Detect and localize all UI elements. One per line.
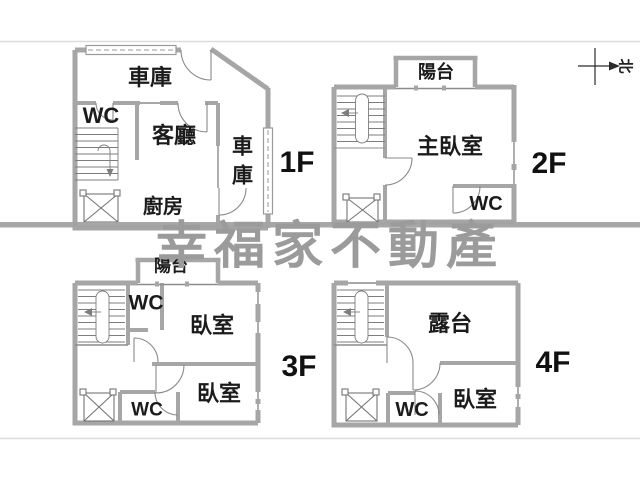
floor1-garage-shutter-right: [264, 128, 273, 214]
floor2-tag: 2F: [531, 149, 566, 179]
floor2-stairs: [334, 94, 385, 148]
floor4-elevator: [342, 389, 379, 421]
floor1-garage-shutter-top: [86, 46, 176, 55]
floor1-garage-top-label: 車庫: [128, 67, 172, 89]
floor3-wc-lower-label: WC: [131, 401, 163, 420]
floor3-wc-upper-label: WC: [129, 293, 164, 314]
compass-north-label: 北: [616, 58, 637, 73]
floor1-wc-label: WC: [83, 105, 120, 127]
floor3-bedroom-lower-label: 臥室: [197, 383, 241, 405]
floor1-garage-side-label: 車庫: [231, 135, 252, 193]
compass-arrow-icon: [578, 48, 620, 85]
floor3-tag: 3F: [281, 352, 316, 382]
floor3-elevator: [80, 389, 116, 421]
floor4-terrace-label: 露台: [428, 313, 472, 335]
floor2-balcony-label: 陽台: [418, 63, 454, 81]
floor4-bedroom-label: 臥室: [453, 389, 497, 411]
floor-plan-image: 車庫 WC 客廳 車庫 廚房 1F 陽台 主臥室 WC 2F 陽台 WC 臥室 …: [0, 0, 640, 480]
floor2-master-bedroom-label: 主臥室: [417, 136, 483, 158]
floor3-stairs: [78, 290, 125, 343]
floor1-stairs: [75, 128, 118, 180]
floor4-tag: 4F: [535, 348, 570, 378]
floor1-elevator: [80, 190, 120, 222]
floor3-bedroom-upper-label: 臥室: [190, 315, 234, 337]
floor4-stairs: [337, 290, 384, 343]
watermark-text: 幸福家不動產: [156, 204, 504, 278]
floor1-tag: 1F: [279, 148, 314, 178]
floor1-living-room-label: 客廳: [152, 125, 196, 147]
floor4-wc-label: WC: [395, 400, 428, 420]
